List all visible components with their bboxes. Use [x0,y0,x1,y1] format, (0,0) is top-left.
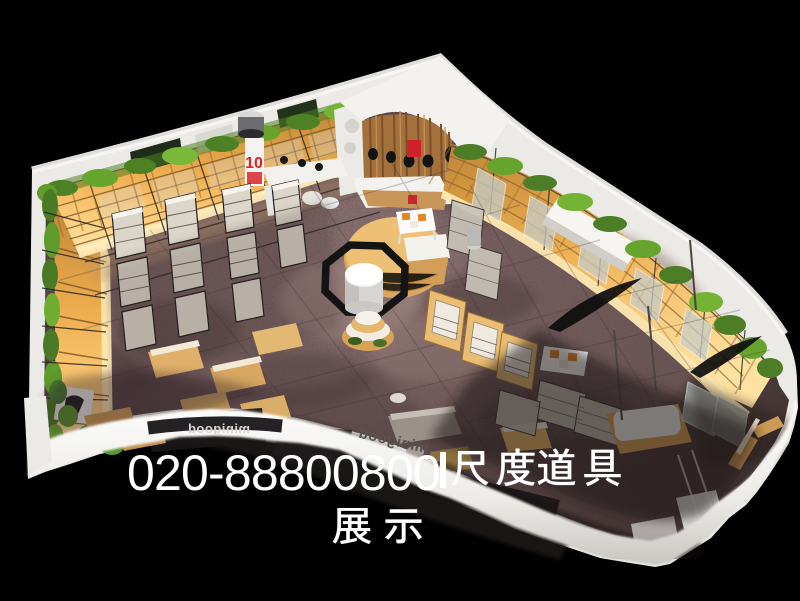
svg-text:020-88800800: 020-88800800 [127,445,440,501]
svg-text:10: 10 [245,155,263,172]
svg-text:minigood: minigood [188,421,251,436]
